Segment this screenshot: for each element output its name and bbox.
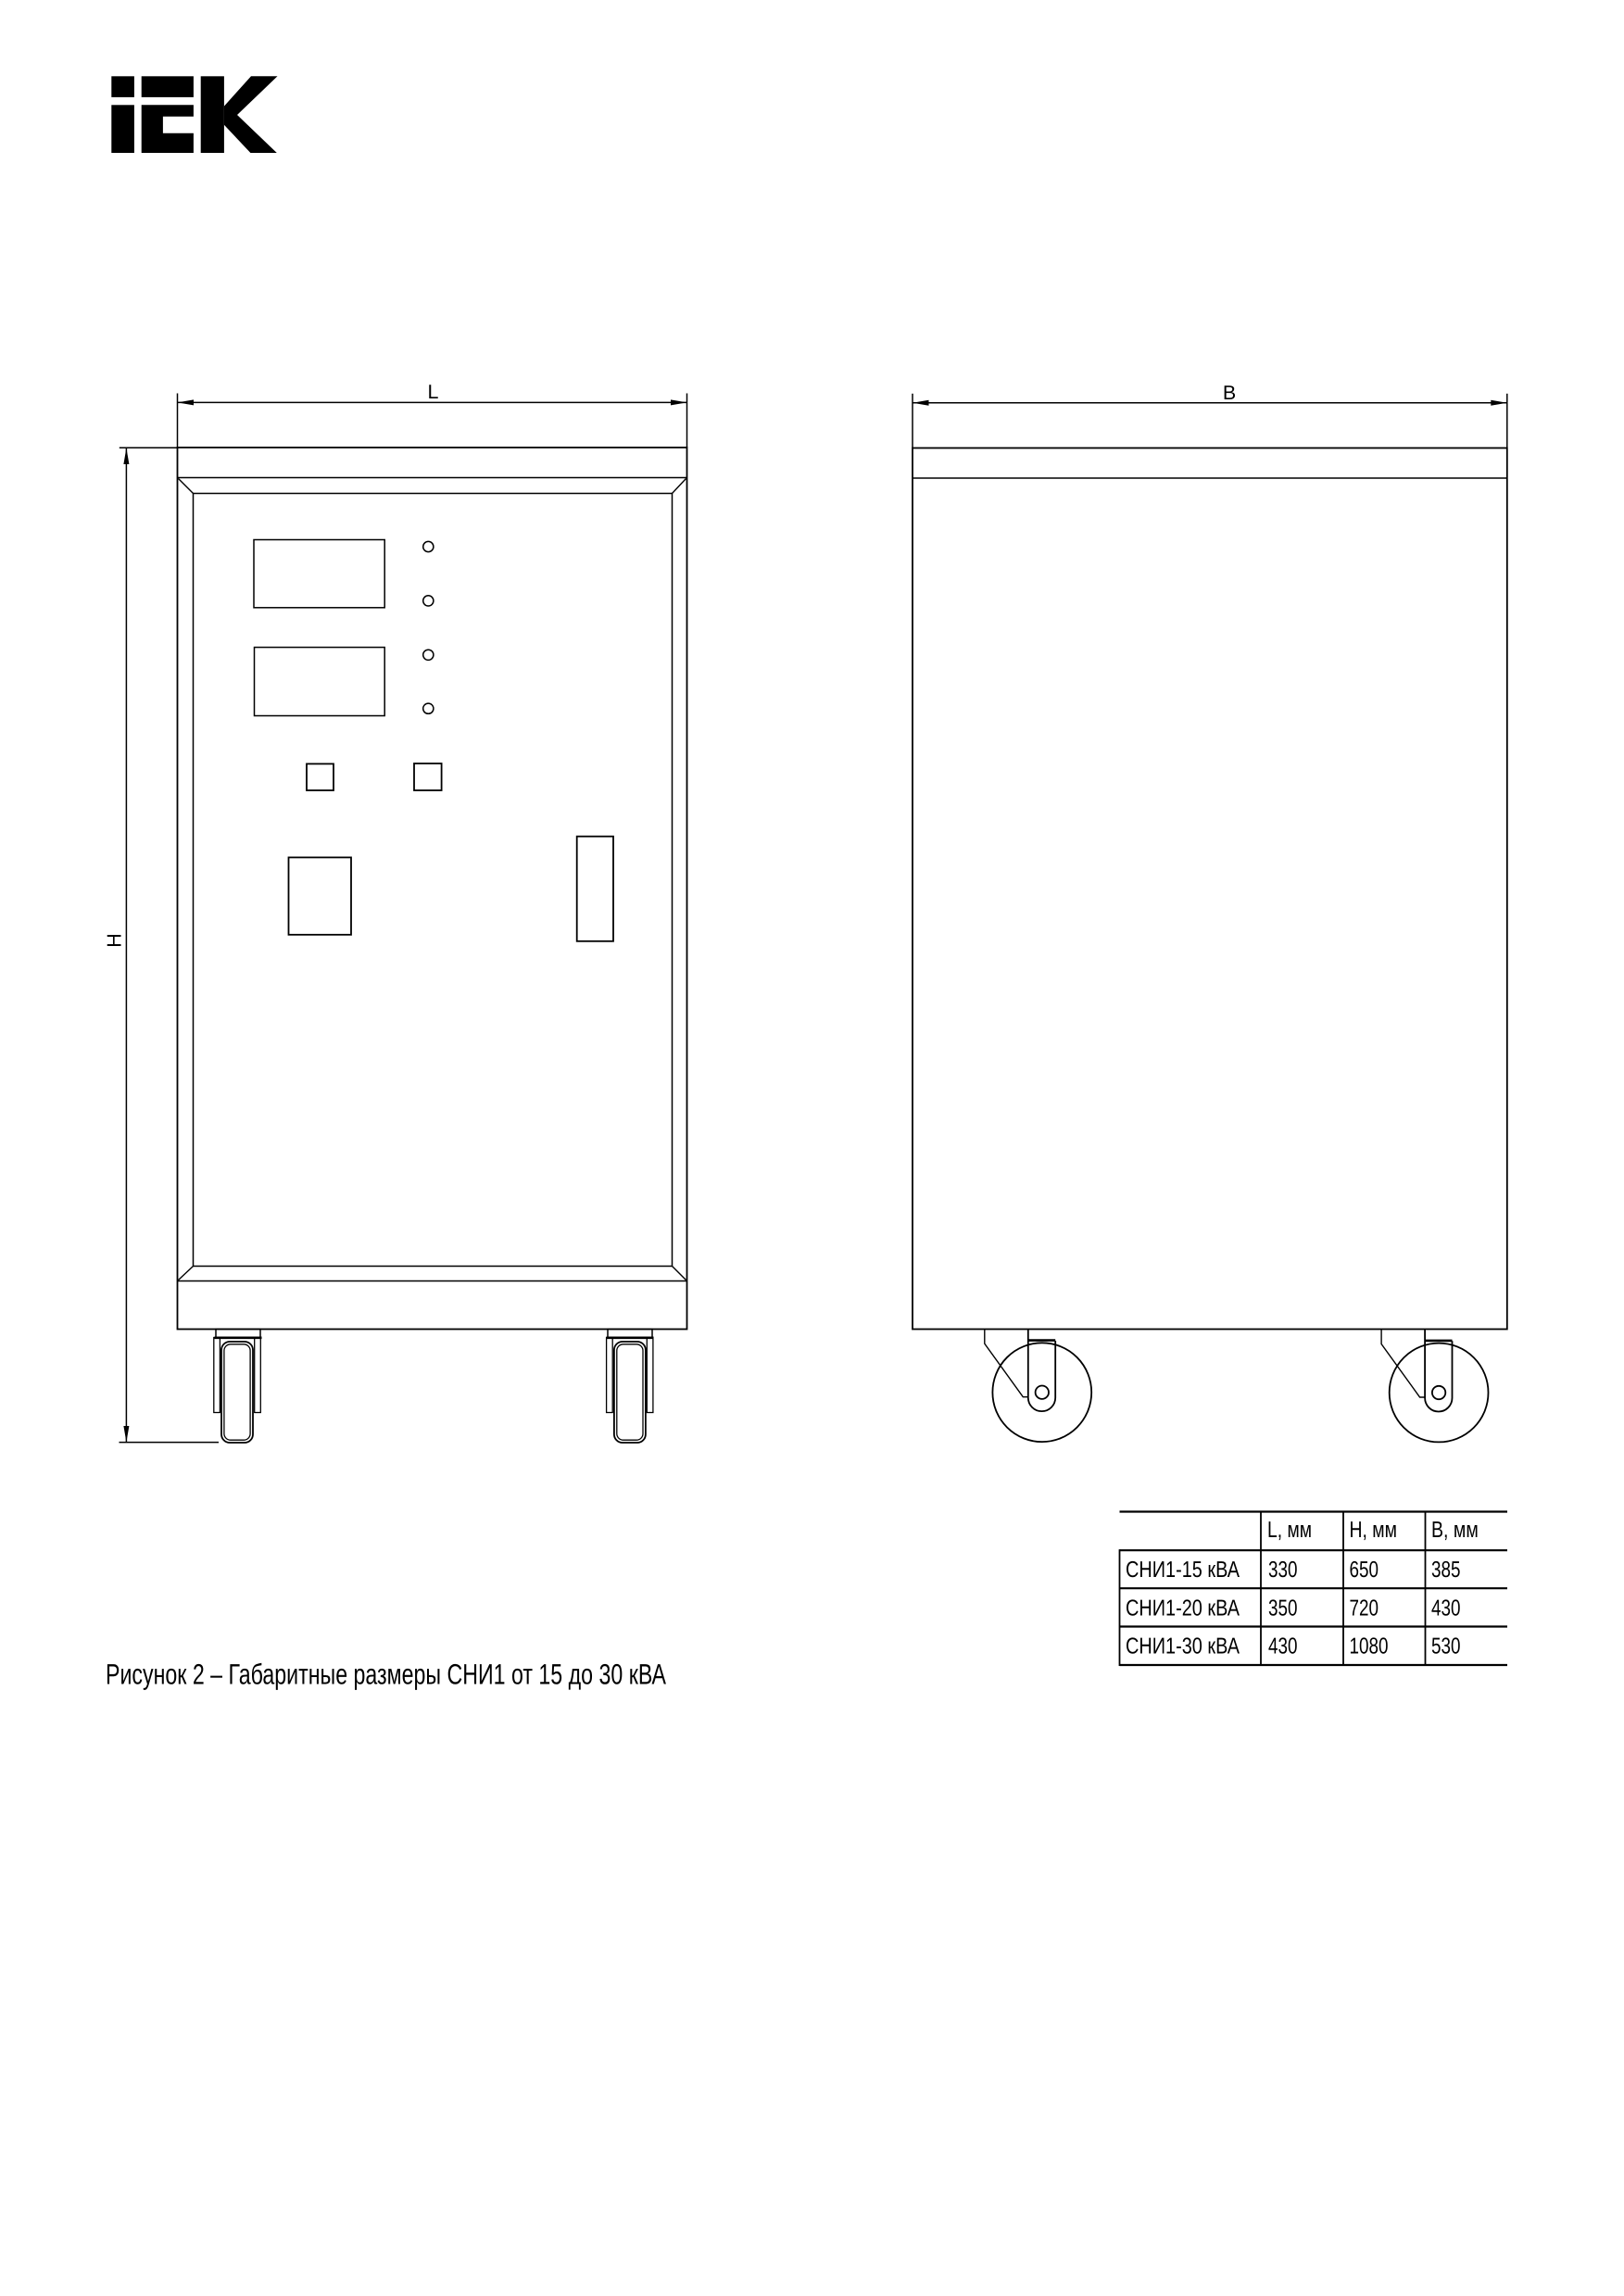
svg-text:430: 430 [1268, 1634, 1298, 1659]
svg-text:650: 650 [1350, 1558, 1379, 1583]
svg-text:1080: 1080 [1350, 1634, 1389, 1659]
svg-text:385: 385 [1431, 1558, 1461, 1583]
svg-text:H, мм: H, мм [1350, 1518, 1398, 1543]
svg-text:L, мм: L, мм [1267, 1518, 1312, 1543]
svg-text:720: 720 [1350, 1596, 1379, 1621]
svg-text:Рисунок 2 – Габаритные размеры: Рисунок 2 – Габаритные размеры СНИ1 от 1… [106, 1658, 666, 1690]
svg-text:СНИ1-15 кВА: СНИ1-15 кВА [1126, 1558, 1240, 1583]
svg-text:330: 330 [1268, 1558, 1298, 1583]
svg-text:530: 530 [1431, 1634, 1461, 1659]
svg-text:H: H [104, 933, 126, 948]
svg-text:430: 430 [1431, 1596, 1461, 1621]
svg-text:СНИ1-30 кВА: СНИ1-30 кВА [1126, 1634, 1240, 1659]
svg-text:B: B [1223, 382, 1236, 404]
svg-text:L: L [428, 381, 439, 403]
svg-text:СНИ1-20 кВА: СНИ1-20 кВА [1126, 1596, 1240, 1621]
svg-text:B, мм: B, мм [1431, 1518, 1479, 1543]
svg-text:350: 350 [1268, 1596, 1298, 1621]
